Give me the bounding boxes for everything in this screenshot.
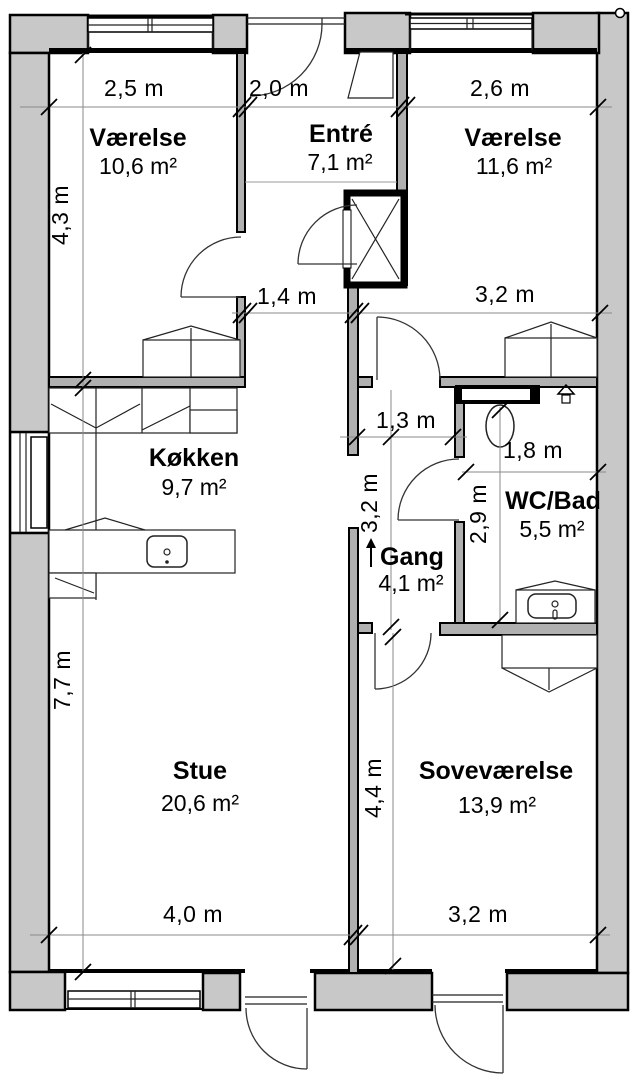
dim-gang-height: 3,2 m [356, 473, 382, 533]
room-label-gang: Gang [380, 543, 444, 571]
entry-arrow-icon [366, 538, 376, 567]
reference-point-icon [616, 9, 625, 18]
room-label-entre: Entré [309, 120, 373, 148]
room-area-entre: 7,1 m² [307, 149, 373, 175]
room-area-gang: 4,1 m² [378, 570, 444, 596]
dim-bottom-left: 4,0 m [163, 901, 223, 927]
room-area-wc-bad: 5,5 m² [519, 516, 585, 542]
stue-balcony-door [245, 997, 307, 1069]
room-label-stue: Stue [173, 757, 227, 785]
room-area-vaerelse-nw: 10,6 m² [99, 153, 177, 179]
sove-balcony-door [432, 995, 503, 1073]
wardrobe-sovevaerelse [502, 635, 597, 692]
window-nw [88, 16, 213, 48]
window-ne [405, 14, 533, 50]
entre-cabinet [348, 52, 393, 98]
dim-sove-height: 4,4 m [360, 758, 386, 818]
door-vaerelse-nw [181, 237, 241, 297]
labels: Værelse 10,6 m² Entré 7,1 m² Værelse 11,… [47, 75, 601, 927]
wardrobe-vaerelse-nw [143, 326, 240, 377]
room-label-sovevaerelse: Soveværelse [419, 757, 573, 785]
wardrobe-vaerelse-ne [505, 322, 597, 377]
door-gang-sove [375, 633, 431, 689]
dim-top-middle: 2,0 m [249, 75, 309, 101]
window-stue [65, 991, 203, 1009]
door-wc [398, 459, 459, 520]
dim-mid-corridor: 1,4 m [257, 283, 317, 309]
door-vaerelse-ne [377, 317, 440, 380]
dim-wc-height: 2,9 m [465, 484, 491, 544]
bathroom-sink [516, 581, 595, 623]
room-label-wc-bad: WC/Bad [505, 487, 601, 515]
dim-left-lower: 7,7 m [49, 650, 75, 710]
floor-plan-canvas: Værelse 10,6 m² Entré 7,1 m² Værelse 11,… [0, 0, 630, 1080]
dim-bottom-right: 3,2 m [448, 901, 508, 927]
room-area-vaerelse-ne: 11,6 m² [476, 153, 553, 179]
dim-top-right: 2,6 m [470, 75, 530, 101]
dim-top-left: 2,5 m [104, 75, 164, 101]
room-area-koekken: 9,7 m² [161, 474, 227, 500]
toilet-niche [455, 385, 540, 404]
dim-vestibule: 1,3 m [376, 407, 436, 433]
room-label-vaerelse-ne: Værelse [464, 124, 561, 152]
elevator-shaft [343, 193, 404, 285]
room-label-koekken: Køkken [149, 444, 239, 472]
dim-left-upper: 4,3 m [47, 185, 73, 245]
kitchen-balcony-door [10, 432, 49, 533]
kitchen-sink [147, 536, 187, 567]
room-area-stue: 20,6 m² [161, 790, 239, 816]
dim-wc-width: 1,8 m [503, 437, 563, 463]
dim-mid-room: 3,2 m [475, 281, 535, 307]
room-label-vaerelse-nw: Værelse [89, 124, 186, 152]
floor-plan-drawing: Værelse 10,6 m² Entré 7,1 m² Værelse 11,… [0, 0, 630, 1080]
room-area-sovevaerelse: 13,9 m² [458, 792, 536, 818]
kitchen-island [49, 518, 235, 598]
